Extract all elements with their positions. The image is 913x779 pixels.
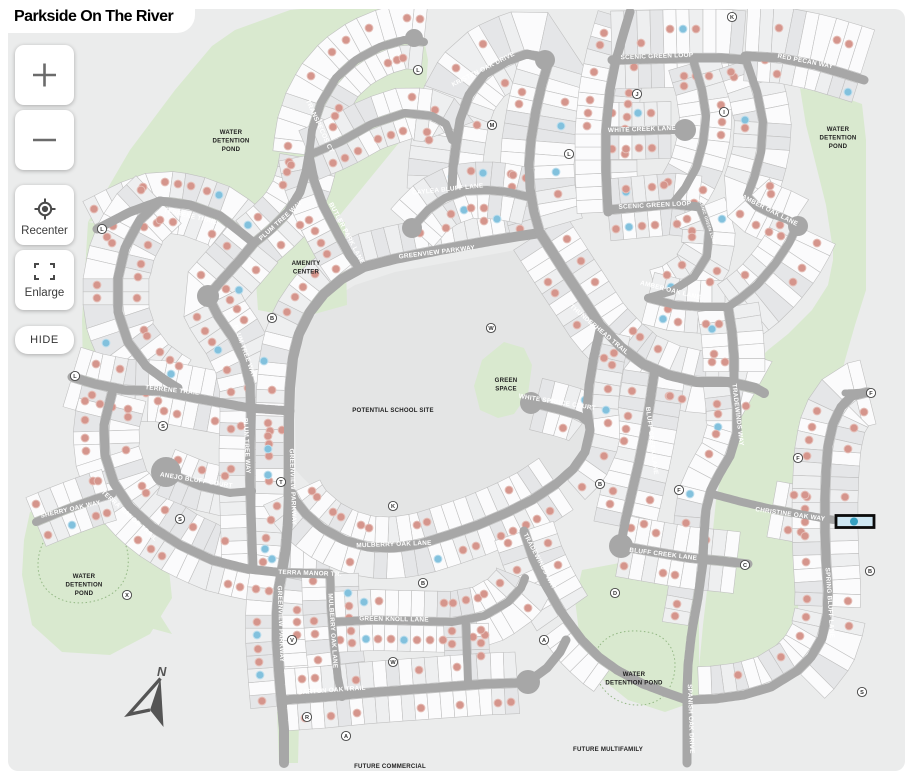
svg-text:B: B	[868, 569, 872, 575]
svg-text:B: B	[270, 316, 274, 322]
svg-text:FUTURE COMMERCIAL: FUTURE COMMERCIAL	[354, 763, 426, 770]
svg-text:POND: POND	[222, 146, 241, 153]
svg-text:WATER: WATER	[827, 126, 850, 133]
svg-text:DETENTION: DETENTION	[819, 135, 856, 142]
svg-text:GREEN KNOLL LANE: GREEN KNOLL LANE	[359, 615, 429, 623]
svg-text:WATER: WATER	[220, 129, 243, 136]
svg-text:R: R	[305, 715, 309, 721]
svg-text:J: J	[635, 92, 638, 98]
svg-text:K: K	[391, 504, 395, 510]
svg-text:L: L	[567, 152, 571, 158]
svg-text:S: S	[178, 517, 182, 523]
svg-text:B: B	[598, 482, 602, 488]
svg-text:L: L	[100, 227, 104, 233]
svg-text:POND: POND	[75, 590, 94, 597]
svg-text:A: A	[542, 638, 546, 644]
svg-text:CENTER: CENTER	[293, 269, 320, 276]
svg-text:F: F	[869, 391, 873, 397]
svg-text:V: V	[290, 638, 294, 644]
svg-text:T: T	[279, 480, 283, 486]
svg-text:X: X	[125, 593, 129, 599]
svg-text:A: A	[344, 734, 348, 740]
svg-text:GREEN: GREEN	[495, 377, 518, 384]
svg-text:F: F	[796, 456, 800, 462]
svg-text:F: F	[677, 488, 681, 494]
svg-text:WATER: WATER	[623, 671, 646, 678]
svg-text:C: C	[743, 563, 747, 569]
svg-text:B: B	[421, 581, 425, 587]
svg-text:N: N	[157, 664, 167, 679]
svg-text:AMENITY: AMENITY	[292, 260, 321, 267]
svg-text:D: D	[613, 591, 617, 597]
svg-text:POTENTIAL SCHOOL SITE: POTENTIAL SCHOOL SITE	[352, 407, 434, 414]
svg-text:S: S	[860, 690, 864, 696]
svg-text:W: W	[390, 660, 396, 666]
svg-text:DETENTION: DETENTION	[212, 138, 249, 145]
svg-text:FUTURE MULTIFAMILY: FUTURE MULTIFAMILY	[573, 746, 643, 753]
svg-text:M: M	[490, 123, 495, 129]
svg-text:WATER: WATER	[73, 573, 96, 580]
svg-text:SPACE: SPACE	[495, 386, 517, 393]
svg-text:DETENTION: DETENTION	[65, 582, 102, 589]
svg-text:DETENTION POND: DETENTION POND	[605, 680, 663, 687]
svg-text:L: L	[73, 374, 77, 380]
svg-text:POND: POND	[829, 143, 848, 150]
svg-text:K: K	[730, 15, 734, 21]
svg-text:W: W	[488, 326, 494, 332]
svg-text:S: S	[161, 424, 165, 430]
svg-text:L: L	[416, 68, 420, 74]
